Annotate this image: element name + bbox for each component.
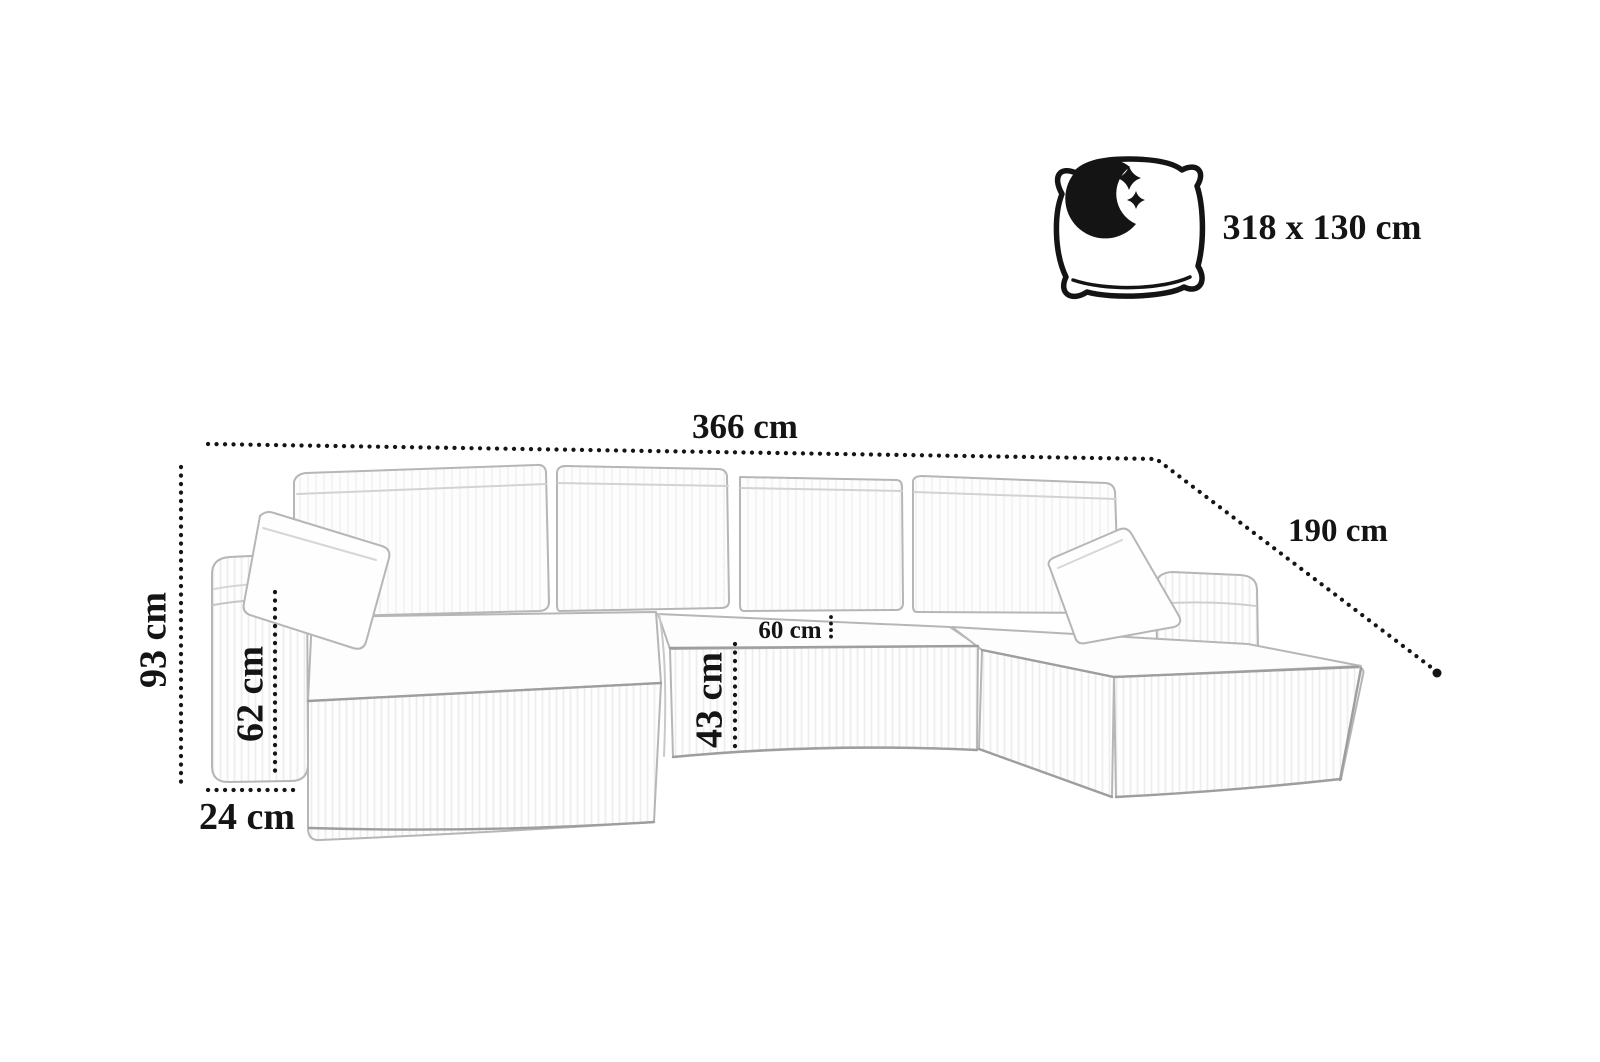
moon-pillow-icon [1056,158,1202,296]
seat-depth-label: 60 cm [758,617,821,644]
dimension-line-depth-endpoint [1433,669,1442,678]
sleeping-area-badge: 318 x 130 cm [1056,158,1421,296]
sleeping-area-label: 318 x 130 cm [1223,207,1422,247]
height-label: 93 cm [132,592,174,688]
right-chaise-front [1114,667,1363,797]
back-cushion [557,466,729,611]
depth-label: 190 cm [1288,513,1388,549]
sofa-dimension-diagram: 366 cm 190 cm 93 cm 62 cm 24 cm 60 cm 43… [0,0,1600,1062]
diagram-canvas: 366 cm 190 cm 93 cm 62 cm 24 cm 60 cm 43… [0,0,1600,1062]
total-width-label: 366 cm [692,407,798,446]
seat-height-label: 43 cm [688,652,730,748]
armrest-depth-label: 24 cm [199,796,295,838]
back-cushion [740,477,903,611]
back-cushions [294,465,1119,617]
armrest-height-label: 62 cm [229,646,271,742]
left-chaise-front [308,683,661,840]
dimension-line-total-width [208,444,1157,459]
sofa-illustration [212,465,1363,840]
